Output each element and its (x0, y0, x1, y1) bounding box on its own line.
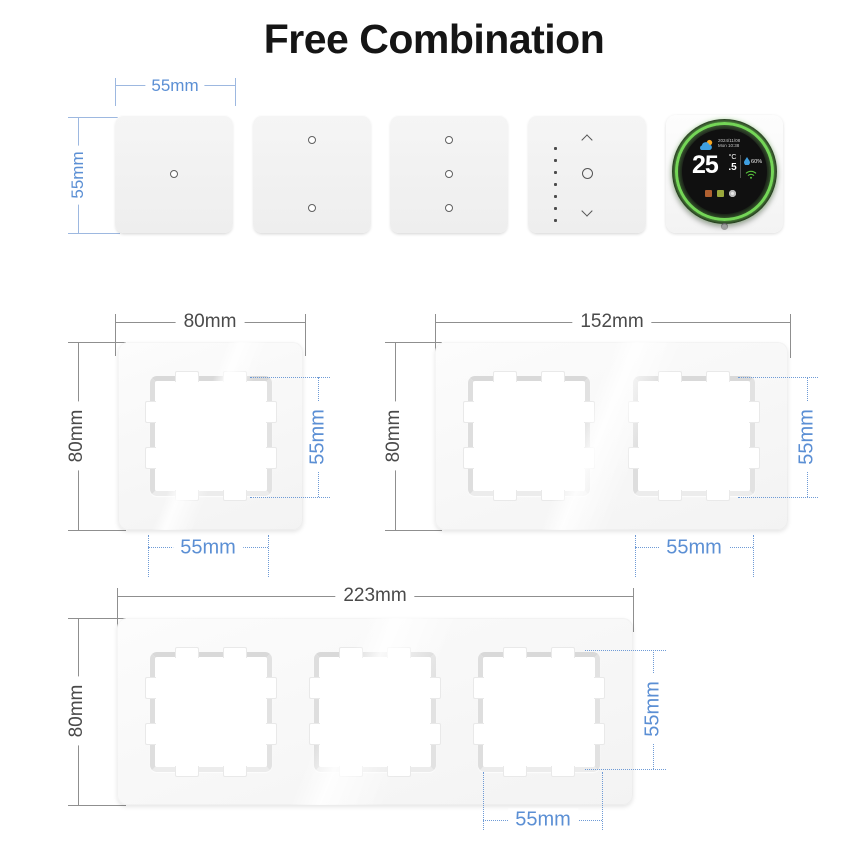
dim-ext-line (483, 772, 484, 830)
dim-ext-line (753, 535, 754, 577)
opening-width-label: 55mm (508, 809, 578, 832)
opening-tab (175, 490, 199, 501)
touch-dot (445, 170, 453, 178)
opening-tab (463, 447, 474, 469)
dim-ref-line (585, 769, 666, 770)
double-frame-width-label: 152mm (572, 311, 651, 333)
opening-tab (594, 677, 605, 699)
thermostat-screen: 2024/11/08 Mon 10:38 25 °C .5 60% (682, 129, 767, 214)
opening-tab (339, 647, 363, 658)
dim-ext-line (148, 535, 149, 577)
touch-dot (445, 204, 453, 212)
triple-frame-height-label: 80mm (66, 677, 88, 746)
module-height-label: 55mm (68, 145, 88, 204)
dim-ref-line (250, 497, 330, 498)
dial-notch (721, 223, 728, 230)
triple-frame-width-label: 223mm (335, 585, 414, 607)
opening-tab (430, 723, 441, 745)
opening-tab (584, 447, 595, 469)
double-frame-height-label: 80mm (383, 402, 405, 471)
module-width-label: 55mm (145, 76, 204, 96)
opening-tab (594, 723, 605, 745)
opening-tab (493, 490, 517, 501)
dim-tick (68, 342, 126, 343)
opening-tab (387, 766, 411, 777)
dimmer-level-dot (554, 159, 557, 162)
opening-tab (473, 723, 484, 745)
single-frame (118, 342, 303, 530)
opening-tab (658, 371, 682, 382)
opening-height-label: 55mm (796, 402, 819, 472)
opening-tab (309, 677, 320, 699)
product-diagram: Free Combination 55mm 55mm (0, 0, 868, 868)
opening-tab (541, 371, 565, 382)
thermostat-dial: 2024/11/08 Mon 10:38 25 °C .5 60% (672, 119, 777, 224)
opening-tab (223, 490, 247, 501)
opening-tab (503, 766, 527, 777)
frame-opening (314, 652, 436, 772)
opening-height-label: 55mm (307, 402, 330, 472)
dim-tick (235, 78, 236, 106)
dimmer-level-dot (554, 183, 557, 186)
dimmer-touch-ring (582, 168, 593, 179)
opening-tab (430, 677, 441, 699)
opening-tab (145, 677, 156, 699)
dimmer-level-dot (554, 219, 557, 222)
opening-tab (266, 447, 277, 469)
opening-width-label: 55mm (659, 537, 729, 560)
frame-opening (150, 652, 272, 772)
screen-divider (740, 155, 741, 178)
switch-2gang-panel (253, 115, 371, 233)
dim-ext-line (602, 772, 603, 830)
dim-tick (385, 342, 442, 343)
opening-tab (266, 401, 277, 423)
touch-dot (308, 204, 316, 212)
switch-1gang-panel (115, 115, 233, 233)
dim-tick (790, 314, 791, 358)
thermostat-panel: 2024/11/08 Mon 10:38 25 °C .5 60% (666, 115, 783, 233)
dimmer-level-dot (554, 171, 557, 174)
dimmer-level-dot (554, 195, 557, 198)
temperature-decimal: .5 (725, 162, 740, 174)
dim-tick (633, 588, 634, 632)
dim-tick (115, 314, 116, 356)
dim-tick (68, 618, 126, 619)
dim-tick (115, 78, 116, 106)
dim-tick (305, 314, 306, 356)
touch-dot (445, 136, 453, 144)
dim-ext-line (635, 535, 636, 577)
datetime: 2024/11/08 Mon 10:38 (718, 138, 740, 148)
dim-tick (68, 805, 126, 806)
opening-tab (175, 647, 199, 658)
dim-ext-line (268, 535, 269, 577)
opening-tab (266, 723, 277, 745)
dimmer-level-dot (554, 207, 557, 210)
triple-frame (117, 618, 633, 805)
dim-tick (68, 117, 120, 118)
weather-icon (699, 139, 715, 151)
double-frame (435, 342, 788, 530)
single-frame-height-label: 80mm (66, 402, 88, 471)
chevron-down-icon (581, 205, 592, 216)
frame-opening (478, 652, 600, 772)
opening-tab (658, 490, 682, 501)
single-frame-width-label: 80mm (176, 311, 245, 333)
opening-tab (706, 490, 730, 501)
opening-tab (628, 401, 639, 423)
page-title: Free Combination (0, 16, 868, 63)
dim-ref-line (738, 377, 818, 378)
opening-height-label: 55mm (642, 674, 665, 744)
dimmer-panel (528, 115, 646, 233)
frame-opening (468, 376, 590, 496)
opening-tab (223, 766, 247, 777)
opening-tab (309, 723, 320, 745)
dim-tick (68, 233, 120, 234)
opening-tab (628, 447, 639, 469)
opening-tab (473, 677, 484, 699)
opening-tab (551, 647, 575, 658)
opening-tab (339, 766, 363, 777)
opening-tab (223, 647, 247, 658)
opening-tab (175, 371, 199, 382)
temperature-unit: °C (725, 154, 740, 162)
opening-tab (175, 766, 199, 777)
heating-mode-icon (705, 190, 712, 197)
dim-tick (385, 530, 442, 531)
power-mode-icon (729, 190, 736, 197)
dim-tick (68, 530, 126, 531)
switch-3gang-panel (390, 115, 508, 233)
touch-dot (308, 136, 316, 144)
opening-tab (223, 371, 247, 382)
wifi-icon (745, 170, 757, 179)
opening-tab (749, 401, 760, 423)
opening-tab (749, 447, 760, 469)
opening-tab (584, 401, 595, 423)
temperature-value: 25 (692, 151, 718, 180)
opening-tab (493, 371, 517, 382)
frame-opening (633, 376, 755, 496)
opening-tab (463, 401, 474, 423)
opening-tab (145, 723, 156, 745)
chevron-up-icon (581, 134, 592, 145)
opening-tab (387, 647, 411, 658)
opening-tab (541, 490, 565, 501)
opening-tab (503, 647, 527, 658)
frame-opening (150, 376, 272, 496)
droplet-icon (744, 157, 750, 165)
touch-dot (170, 170, 178, 178)
opening-tab (145, 447, 156, 469)
humidity-readout: 60% (744, 156, 767, 166)
dimmer-level-dot (554, 147, 557, 150)
dim-ref-line (738, 497, 818, 498)
eco-mode-icon (717, 190, 724, 197)
opening-tab (551, 766, 575, 777)
opening-tab (266, 677, 277, 699)
opening-tab (706, 371, 730, 382)
opening-width-label: 55mm (173, 537, 243, 560)
opening-tab (145, 401, 156, 423)
